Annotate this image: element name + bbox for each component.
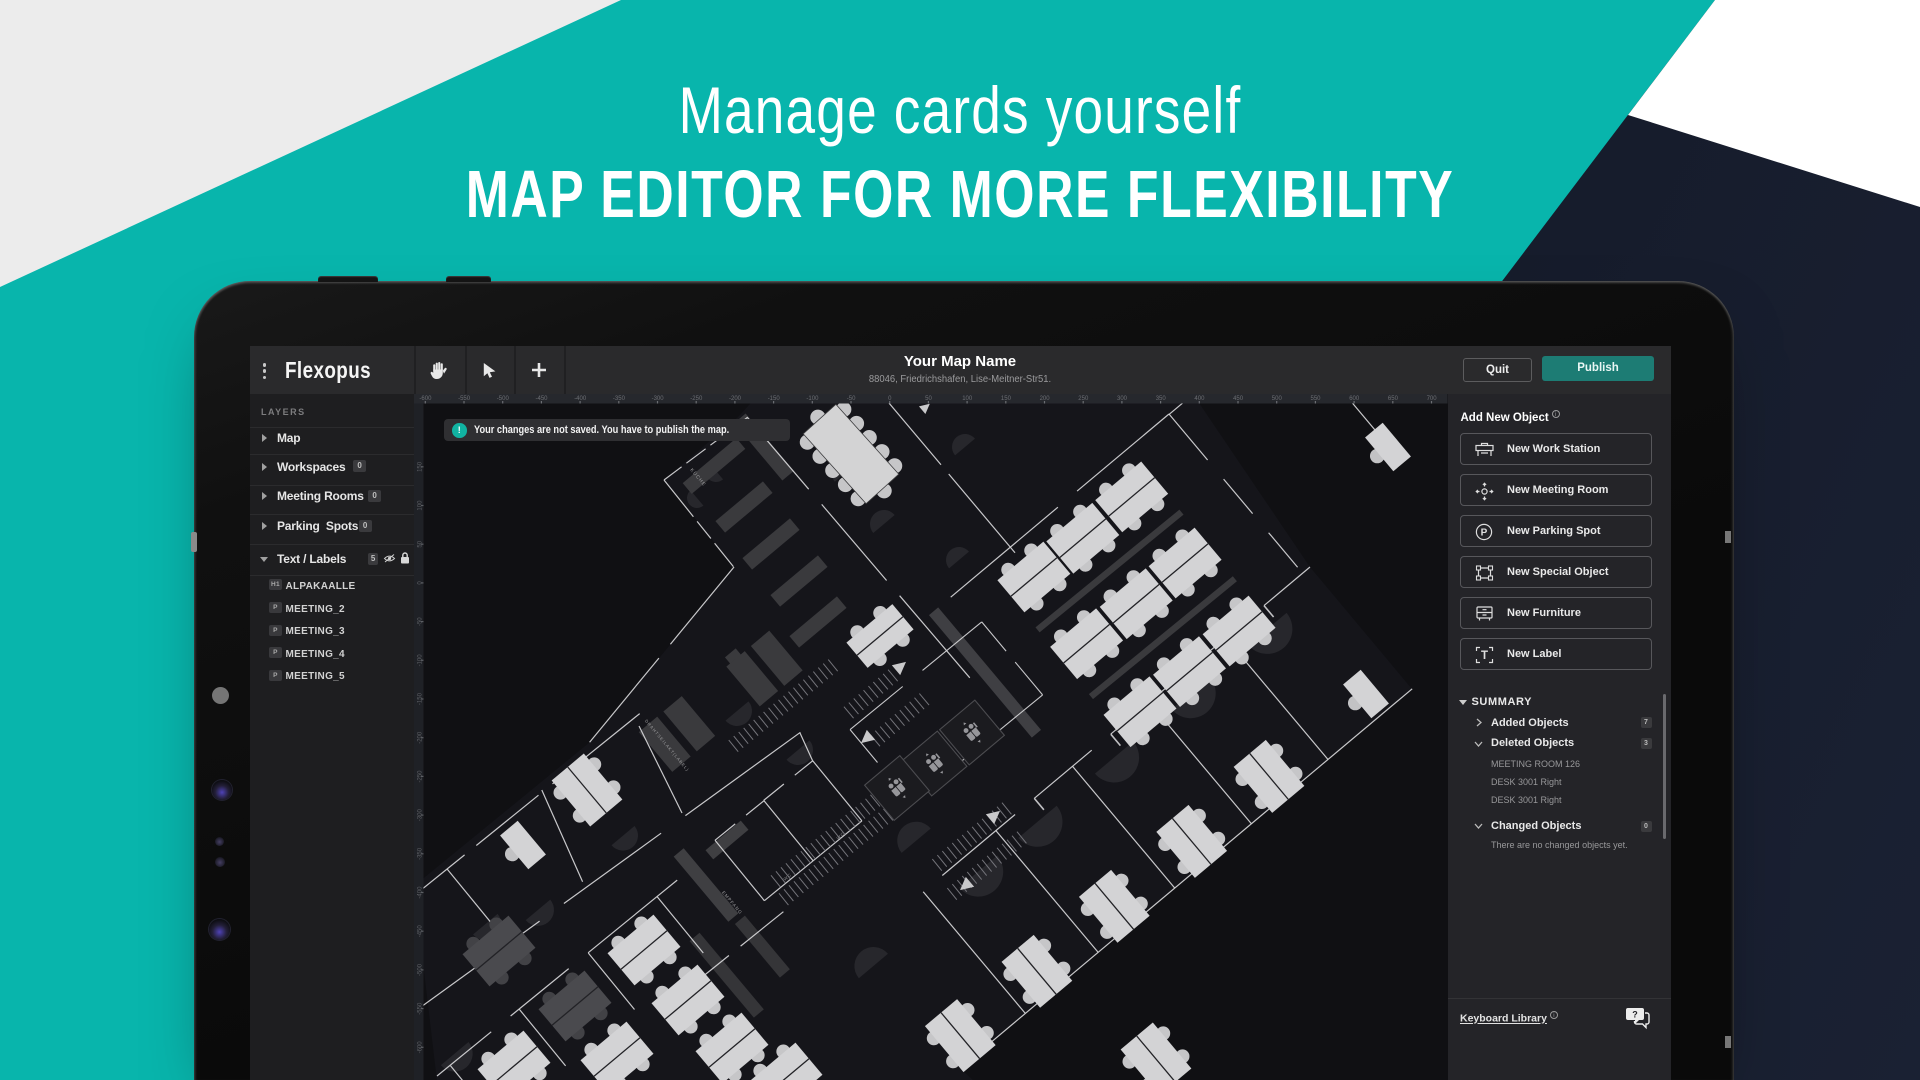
- svg-text:P: P: [1481, 528, 1488, 539]
- svg-text:T: T: [1481, 650, 1488, 662]
- svg-text:?: ?: [1632, 1010, 1638, 1020]
